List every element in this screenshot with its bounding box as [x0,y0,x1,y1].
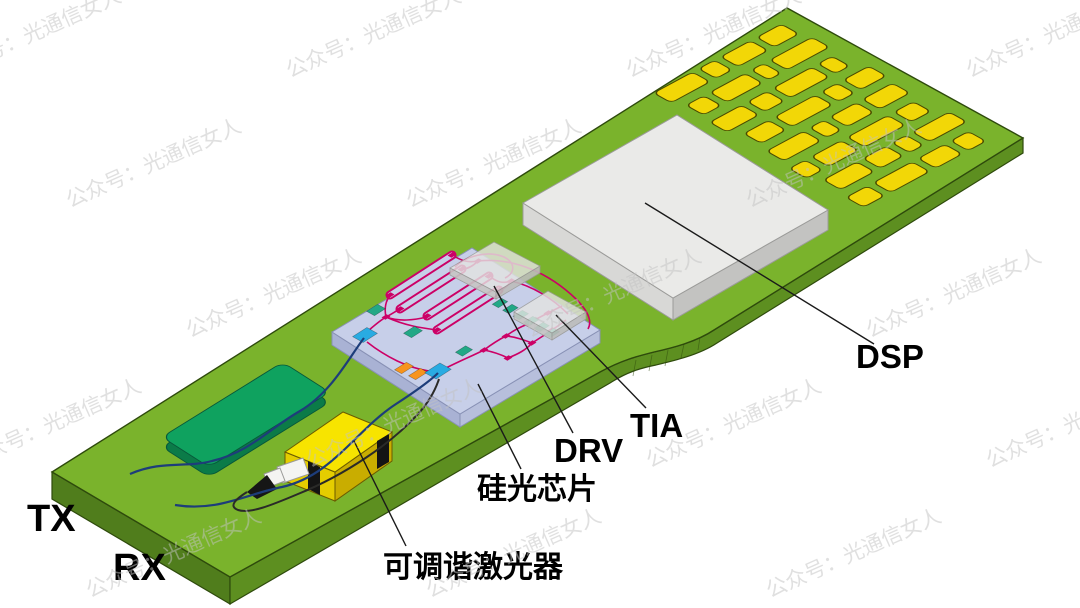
watermark-text: 公众号：光通信女人 [0,0,125,83]
watermark-text: 公众号：光通信女人 [283,0,465,83]
watermark-text: 公众号：光通信女人 [963,0,1080,83]
label-drv: DRV [554,432,623,469]
module-diagram: TX RX 可调谐激光器 硅光芯片 DRV TIA DSP 公众号：光通信女人公… [0,0,1080,608]
watermark-text: 公众号：光通信女人 [63,115,245,213]
watermark-text: 公众号：光通信女人 [763,505,945,603]
label-tx: TX [27,498,76,540]
watermark-text: 公众号：光通信女人 [983,375,1080,473]
watermark-text: 公众号：光通信女人 [863,245,1045,343]
label-dsp: DSP [856,338,924,375]
label-silicon-photonics-chip: 硅光芯片 [477,473,597,506]
optical-module-illustration: TX RX 可调谐激光器 硅光芯片 DRV TIA DSP 公众号：光通信女人公… [0,0,1080,608]
